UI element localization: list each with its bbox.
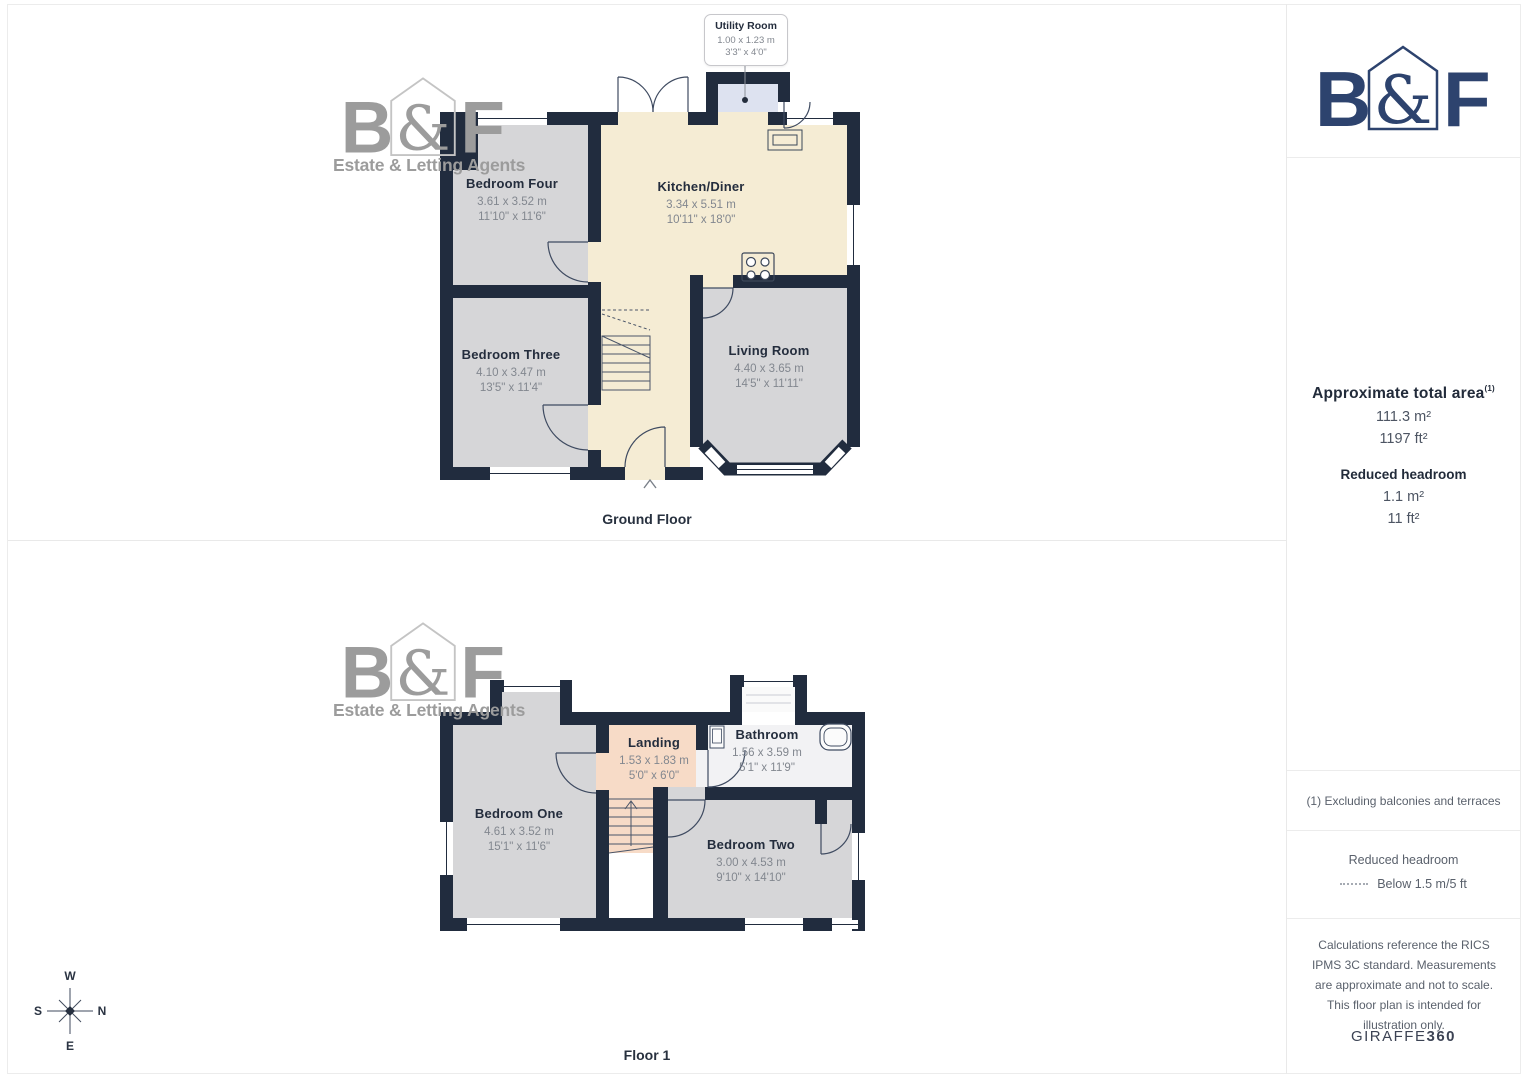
dotted-line-icon (1340, 883, 1368, 885)
watermark-logo: B & F (337, 70, 509, 163)
room-name: Bedroom Four (466, 176, 558, 192)
room-name: Bedroom Two (707, 837, 795, 853)
sidebar-section-divider (1287, 830, 1520, 831)
room-metric: 4.10 x 3.47 m (462, 366, 561, 381)
room-imperial: 15'1" x 11'6" (475, 840, 563, 855)
compass-east-label: E (66, 1039, 74, 1053)
logo-letter-b: B (1315, 55, 1371, 138)
room-name: Kitchen/Diner (657, 179, 744, 195)
room-name: Bedroom One (475, 806, 563, 822)
sidebar-section-divider (1287, 918, 1520, 919)
footnote-marker: (1) (1484, 384, 1494, 393)
logo-ampersand: & (1374, 62, 1433, 138)
area-footnote: (1) Excluding balconies and terraces (1287, 794, 1520, 808)
legend-title: Reduced headroom (1287, 853, 1520, 867)
room-imperial: 5'1" x 11'9" (732, 761, 802, 776)
brand-name: GIRAFFE (1351, 1028, 1427, 1045)
disclaimer-text: Calculations reference the RICS IPMS 3C … (1310, 935, 1498, 1035)
room-label-bedroom-one: Bedroom One 4.61 x 3.52 m 15'1" x 11'6" (475, 806, 563, 854)
room-imperial: 11'10" x 11'6" (466, 210, 558, 225)
total-area-imperial: 1197 ft² (1287, 431, 1520, 447)
ground-floor-caption: Ground Floor (602, 511, 691, 527)
compass-icon: W N E S (25, 963, 115, 1057)
total-area-metric: 111.3 m² (1287, 409, 1520, 425)
logo-ampersand: & (396, 92, 451, 163)
sidebar-divider (1286, 4, 1287, 1074)
room-metric: 3.00 x 4.53 m (707, 856, 795, 871)
compass-rose: W N E S (25, 963, 115, 1062)
watermark-tagline: Estate & Letting Agents (333, 700, 525, 721)
compass-south-label: S (34, 1004, 42, 1018)
giraffe360-brand: GIRAFFE360 (1287, 1028, 1520, 1045)
sidebar-section-divider (1287, 157, 1520, 158)
room-label-bathroom: Bathroom 1.56 x 3.59 m 5'1" x 11'9" (732, 727, 802, 775)
reduced-headroom-metric: 1.1 m² (1287, 489, 1520, 505)
room-metric: 4.61 x 3.52 m (475, 825, 563, 840)
room-metric: 1.56 x 3.59 m (732, 746, 802, 761)
room-label-kitchen-diner: Kitchen/Diner 3.34 x 5.51 m 10'11" x 18'… (657, 179, 744, 227)
room-imperial: 13'5" x 11'4" (462, 381, 561, 396)
watermark-logo: B & F (337, 615, 509, 708)
room-label-living-room: Living Room 4.40 x 3.65 m 14'5" x 11'11" (729, 343, 810, 391)
legend-label: Below 1.5 m/5 ft (1377, 877, 1467, 891)
room-name: Living Room (729, 343, 810, 359)
sidebar-section-divider (1287, 770, 1520, 771)
room-imperial: 5'0" x 6'0" (619, 769, 689, 784)
room-name: Bedroom Three (462, 347, 561, 363)
floor-1-caption: Floor 1 (624, 1047, 671, 1063)
room-label-bedroom-three: Bedroom Three 4.10 x 3.47 m 13'5" x 11'4… (462, 347, 561, 395)
reduced-headroom-title: Reduced headroom (1287, 467, 1520, 482)
callout-room-name: Utility Room (705, 20, 787, 33)
logo-letter-f: F (1443, 55, 1491, 138)
logo-letter-b: B (341, 632, 394, 708)
callout-metric: 1.00 x 1.23 m (705, 35, 787, 47)
sink-icon (710, 726, 724, 748)
room-label-bedroom-four: Bedroom Four 3.61 x 3.52 m 11'10" x 11'6… (466, 176, 558, 224)
compass-north-label: N (98, 1004, 107, 1018)
room-label-bedroom-two: Bedroom Two 3.00 x 4.53 m 9'10" x 14'10" (707, 837, 795, 885)
legend-row: Below 1.5 m/5 ft (1287, 877, 1520, 891)
room-imperial: 14'5" x 11'11" (729, 377, 810, 392)
logo-letter-f: F (460, 87, 505, 163)
logo-letter-b: B (341, 87, 394, 163)
logo-ampersand: & (396, 637, 451, 708)
room-label-landing: Landing 1.53 x 1.83 m 5'0" x 6'0" (619, 735, 689, 783)
callout-imperial: 3'3" x 4'0" (705, 47, 787, 59)
utility-room-callout: Utility Room 1.00 x 1.23 m 3'3" x 4'0" (704, 14, 788, 66)
room-imperial: 10'11" x 18'0" (657, 213, 744, 228)
room-metric: 1.53 x 1.83 m (619, 754, 689, 769)
entrance-arrow-icon (644, 480, 656, 488)
room-name: Landing (619, 735, 689, 751)
floor-panels-divider (8, 540, 1286, 541)
reduced-headroom-imperial: 11 ft² (1287, 511, 1520, 527)
room-metric: 3.34 x 5.51 m (657, 198, 744, 213)
logo-letter-f: F (460, 632, 505, 708)
compass-west-label: W (64, 969, 76, 983)
total-area-title: Approximate total area(1) (1287, 384, 1520, 403)
bathtub-icon (820, 724, 851, 750)
room-metric: 4.40 x 3.65 m (729, 362, 810, 377)
room-imperial: 9'10" x 14'10" (707, 871, 795, 886)
room-metric: 3.61 x 3.52 m (466, 195, 558, 210)
brand-logo: B & F (1311, 38, 1495, 138)
room-name: Bathroom (732, 727, 802, 743)
watermark-tagline: Estate & Letting Agents (333, 155, 525, 176)
brand-suffix: 360 (1426, 1028, 1456, 1045)
total-area-title-text: Approximate total area (1312, 385, 1484, 402)
